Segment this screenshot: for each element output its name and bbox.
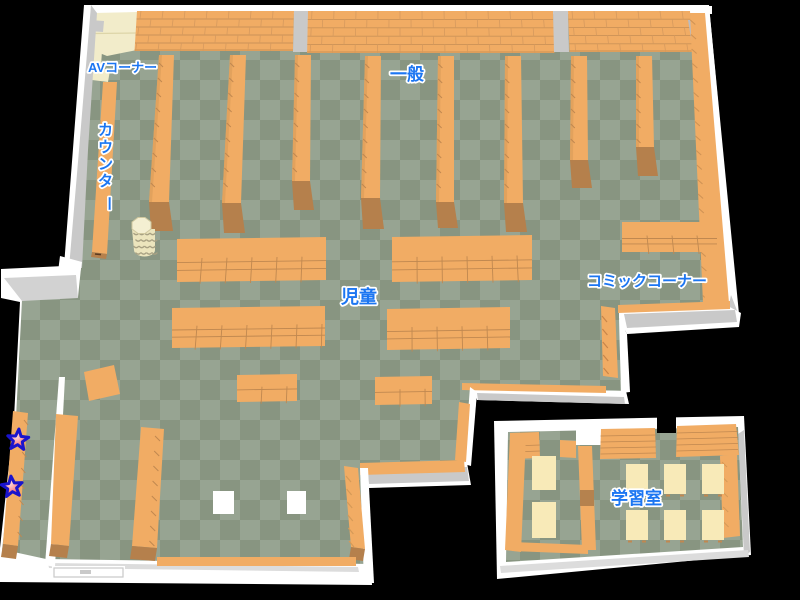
svg-text:一般: 一般: [390, 64, 424, 84]
svg-text:タ: タ: [98, 173, 113, 190]
svg-text:コミックコーナー: コミックコーナー: [587, 273, 707, 290]
svg-text:ー: ー: [100, 196, 117, 211]
svg-text:AVコーナー: AVコーナー: [88, 60, 157, 75]
svg-text:ン: ン: [98, 156, 113, 173]
svg-text:児童: 児童: [340, 286, 377, 307]
svg-text:カ: カ: [98, 122, 113, 139]
svg-text:学習室: 学習室: [611, 488, 662, 508]
svg-text:ウ: ウ: [98, 139, 113, 156]
